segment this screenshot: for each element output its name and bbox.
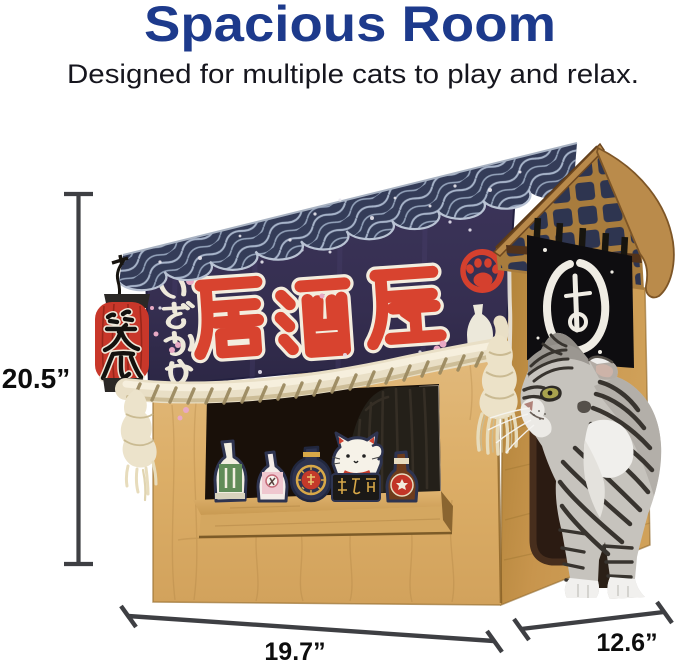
svg-text:20.5”: 20.5”	[2, 363, 71, 394]
svg-text:12.6”: 12.6”	[596, 629, 657, 657]
svg-text:Spacious Room: Spacious Room	[144, 0, 556, 52]
svg-text:Designed for multiple cats to: Designed for multiple cats to play and r…	[67, 59, 639, 89]
svg-text:19.7”: 19.7”	[264, 638, 325, 663]
